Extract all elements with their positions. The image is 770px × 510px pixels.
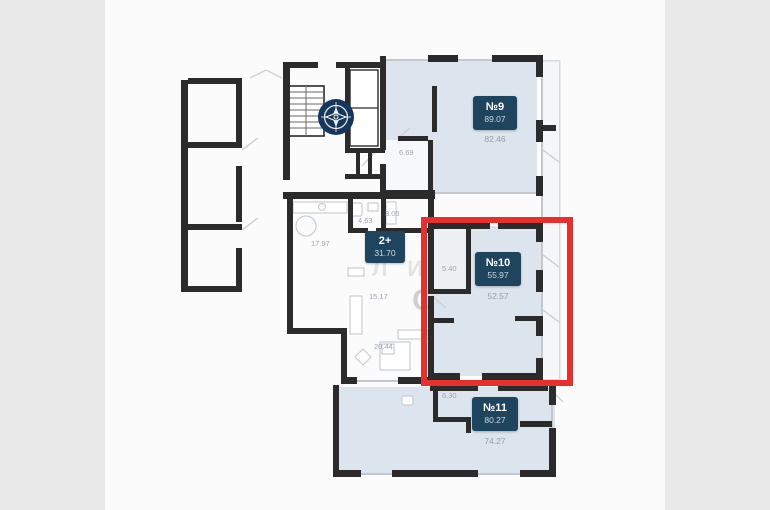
room-area-label: 6.69: [399, 148, 414, 157]
room-area-label: 17.97: [311, 239, 330, 248]
unit-total-area: 89.07: [484, 114, 505, 125]
unit-number: №10: [486, 257, 511, 270]
unit-9-second-area: 82.46: [473, 134, 517, 144]
unit-number: №9: [486, 101, 504, 114]
compass-rose-icon: [317, 98, 355, 136]
room-area-label: 5.40: [442, 264, 457, 273]
room-area-label: 6.30: [442, 391, 457, 400]
room-area-label: 20.44: [374, 342, 393, 351]
unit-badge-10[interactable]: №10 55.97: [475, 252, 521, 286]
unit-10-second-area: 52.57: [475, 291, 521, 301]
room-area-label: 3.05: [385, 209, 400, 218]
unit-badge-9[interactable]: №9 89.07: [473, 96, 517, 130]
unit-total-area: 31.70: [374, 248, 395, 259]
room-area-label: 15.17: [369, 292, 388, 301]
unit-badge-2plus[interactable]: 2+ 31.70: [365, 231, 405, 263]
unit-badge-11[interactable]: №11 80.27: [472, 397, 518, 431]
room-area-label: 4.63: [358, 216, 373, 225]
unit-11-second-area: 74.27: [472, 436, 518, 446]
unit-total-area: 55.97: [487, 270, 508, 281]
unit-total-area: 80.27: [484, 415, 505, 426]
floorplan-page: ЛИЯ ОСТИ: [0, 0, 770, 510]
unit-number: 2+: [379, 235, 392, 248]
unit-number: №11: [483, 402, 507, 415]
